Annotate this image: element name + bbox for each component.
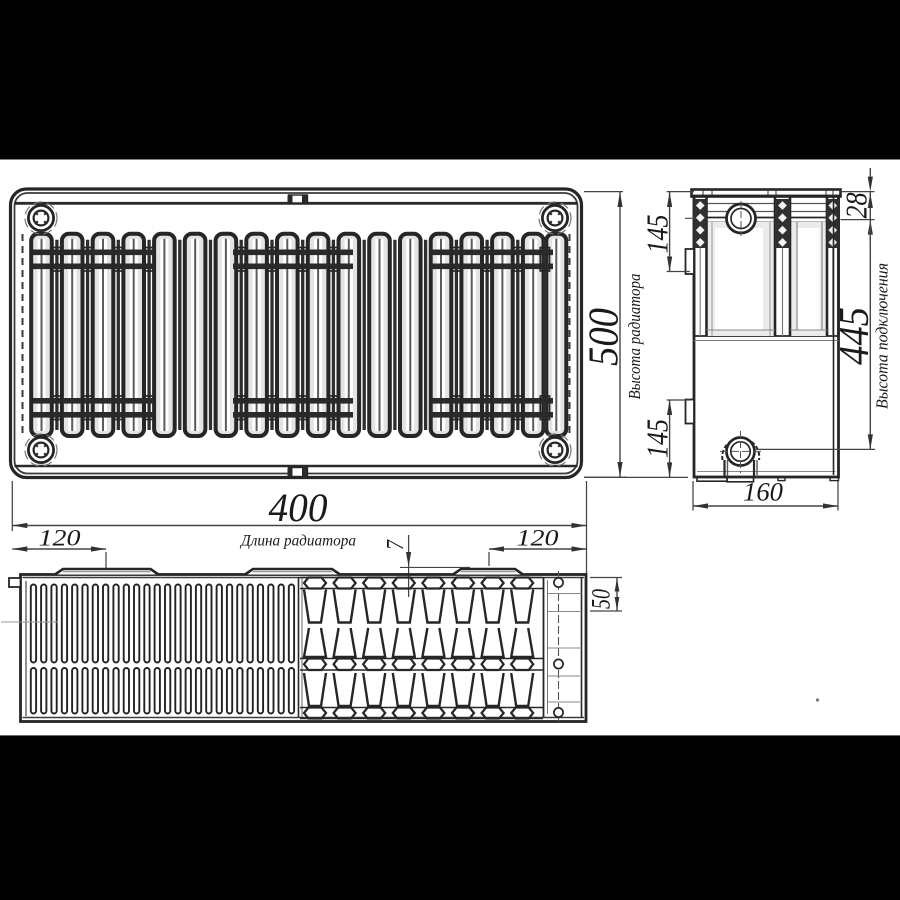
svg-text:145: 145 bbox=[640, 419, 675, 458]
svg-text:50: 50 bbox=[587, 589, 616, 609]
svg-text:7: 7 bbox=[383, 539, 409, 550]
svg-text:120: 120 bbox=[517, 526, 560, 551]
svg-text:445: 445 bbox=[832, 307, 878, 365]
svg-text:160: 160 bbox=[743, 478, 783, 507]
svg-text:400: 400 bbox=[269, 485, 328, 530]
svg-text:Высота радиатора: Высота радиатора bbox=[625, 274, 644, 400]
svg-text:Длина радиатора: Длина радиатора bbox=[239, 533, 356, 550]
svg-text:Высота подключения: Высота подключения bbox=[873, 263, 892, 409]
svg-text:145: 145 bbox=[640, 215, 675, 254]
svg-text:500: 500 bbox=[582, 308, 628, 366]
svg-text:120: 120 bbox=[39, 526, 82, 551]
